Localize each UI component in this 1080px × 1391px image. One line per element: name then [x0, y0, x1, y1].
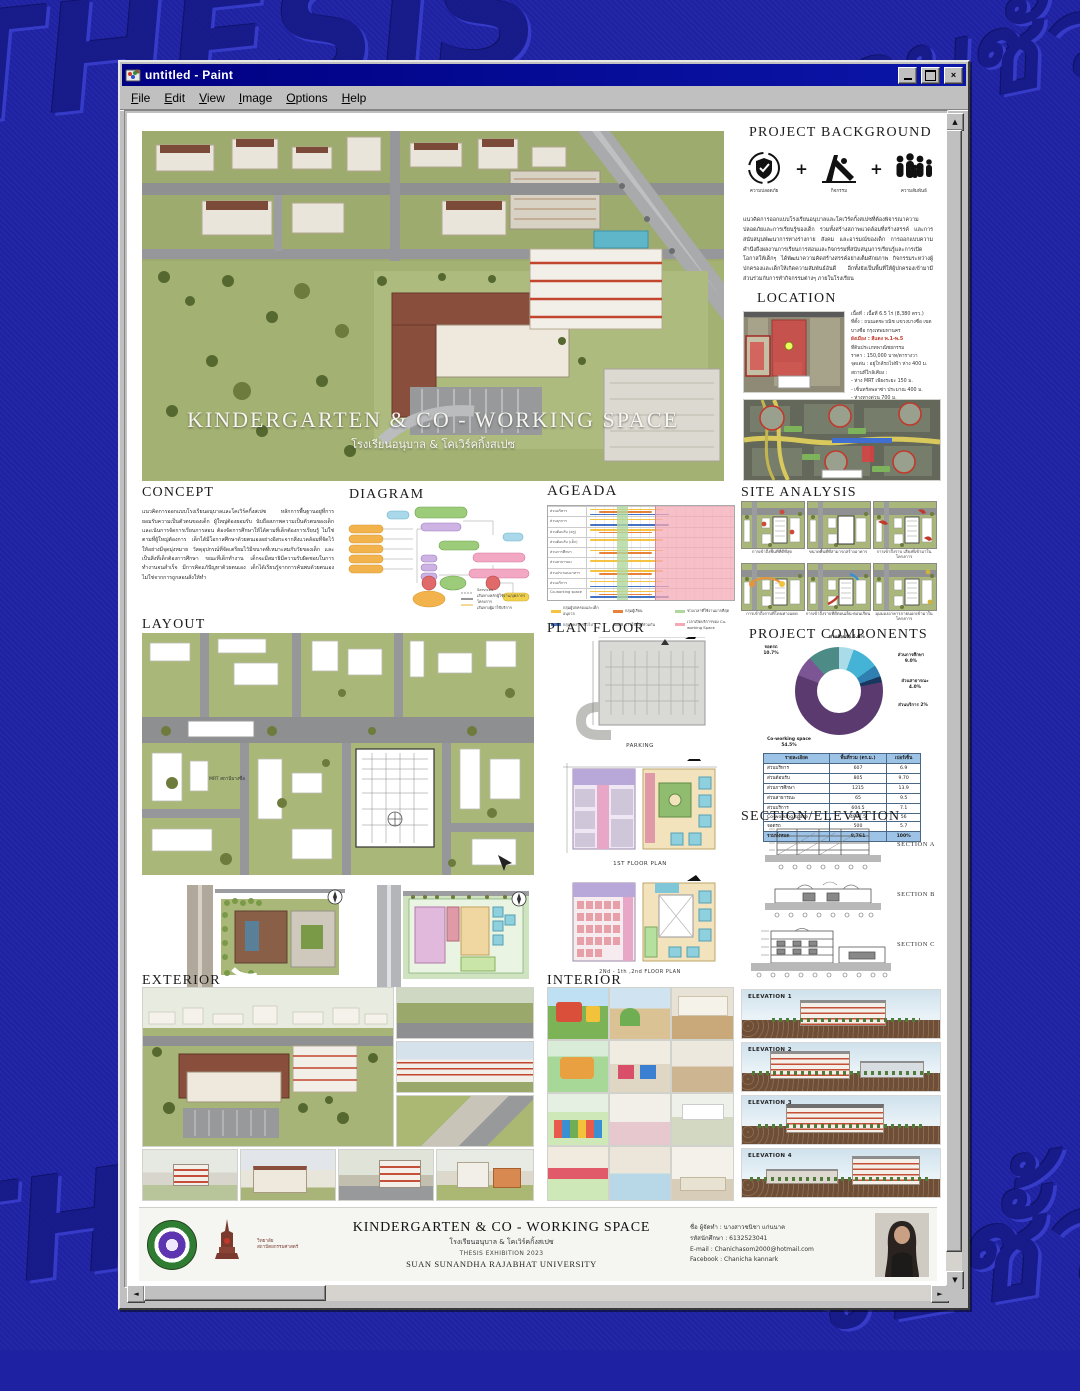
paint-app-icon [125, 67, 141, 83]
elevation-4-render: ELEVATION 4 [741, 1148, 941, 1198]
minimize-button[interactable] [898, 67, 917, 84]
project-background-icons: ความปลอดภัย + กิจกรรม + ความสัมพันธ์ [739, 151, 939, 195]
location-aerial-map [743, 399, 941, 481]
close-button[interactable]: × [944, 67, 963, 84]
author-student-id: รหัสนักศึกษา : 6132523041 [690, 1234, 865, 1245]
minimize-icon [904, 78, 912, 80]
university-emblem-logo [147, 1220, 197, 1270]
footer-author-info: ชื่อ ผู้จัดทำ : นางสาวชนิชา แก่นนาค รหัส… [690, 1223, 865, 1266]
section-c-label: SECTION C [897, 941, 935, 948]
menu-bar: File Edit View Image Options Help [120, 88, 968, 110]
footer-title-block: KINDERGARTEN & CO - WORKING SPACE โรงเรี… [323, 1220, 680, 1269]
section-a-label: SECTION A [897, 841, 935, 848]
interior-render-7 [547, 1093, 609, 1146]
site-analysis-heading: SITE ANALYSIS [741, 485, 857, 501]
location-nearby-item: - เซ็นทรัลพลาซ่า ประมาณ 400 ม. [851, 387, 939, 395]
interior-render-12 [671, 1146, 734, 1201]
poster-canvas: KINDERGARTEN & CO - WORKING SPACE โรงเรี… [127, 113, 949, 1289]
architecture-college-logo [207, 1217, 247, 1273]
maximize-icon [925, 70, 936, 81]
exterior-render-6 [240, 1149, 336, 1201]
ground-floor-site-plan [377, 885, 534, 987]
interior-render-9 [671, 1093, 734, 1146]
scrollbar-corner [946, 1285, 962, 1301]
concept-heading: CONCEPT [142, 485, 214, 501]
site-map-illustration [744, 312, 844, 392]
elevation-2-render: ELEVATION 2 [741, 1042, 941, 1092]
icon-caption: ความปลอดภัย [750, 188, 778, 195]
paint-window: untitled - Paint × File Edit View Image … [118, 60, 970, 1310]
footer-title: KINDERGARTEN & CO - WORKING SPACE [323, 1220, 680, 1236]
footer-subtitle: โรงเรียนอนุบาล & โคเวิร์คกิ้งสเปซ [323, 1237, 680, 1248]
agenda-legend-item: กลุ่มผู้ปกครองและเด็กอนุบาล [551, 605, 609, 617]
site-analysis-caption: การเข้าถึงราบที่ดีตอนเย็น-ตอนเรียน [805, 611, 871, 616]
window-title: untitled - Paint [145, 68, 894, 82]
project-background-heading: PROJECT BACKGROUND [749, 125, 932, 141]
elevation-label: ELEVATION 2 [748, 1047, 792, 1053]
components-donut-chart [795, 647, 883, 735]
exterior-render-3 [396, 1041, 534, 1093]
mrt-station-label: MRT สถานีบางซื่อ [194, 776, 260, 783]
menu-view[interactable]: View [192, 90, 232, 106]
concept-paragraph: แนวคิดการออกแบบโรงเรียนอนุบาลและโคเวิร์ค… [142, 508, 334, 583]
vertical-scrollbar[interactable]: ▲ ▼ [946, 113, 962, 1289]
components-table-row: ส่วนการศึกษา121513.9 [764, 784, 921, 794]
donut-label: Co-working space54.5% [759, 737, 819, 748]
project-background-paragraph: แนวคิดการออกแบบโรงเรียนอนุบาลและโคเวิร์ค… [743, 216, 933, 284]
poster-footer: วิทยาลัยสถาปัตยกรรมศาสตร์ KINDERGARTEN &… [139, 1207, 937, 1281]
site-analysis-caption: การเข้าถึงราบที่โดนทางแดด [739, 611, 805, 616]
site-analysis-thumb-1 [741, 501, 805, 549]
aerial-map-illustration [744, 400, 940, 480]
site-analysis-thumb-5 [807, 563, 871, 611]
icon-caption: กิจกรรม [831, 188, 847, 195]
vertical-scroll-thumb[interactable] [946, 130, 962, 1252]
site-analysis-thumb-3 [873, 501, 937, 549]
hero-render: KINDERGARTEN & CO - WORKING SPACE โรงเรี… [142, 131, 724, 481]
parking-plan [565, 637, 715, 745]
interior-render-11 [609, 1146, 671, 1201]
horizontal-scrollbar[interactable]: ◄ ► [127, 1285, 949, 1301]
donut-label: ส่วนบริการ 2% [891, 703, 935, 709]
section-elevation-heading: SECTION/ELEVATION [741, 809, 900, 825]
parking-caption: PARKING [565, 743, 715, 749]
scroll-up-button[interactable]: ▲ [946, 113, 964, 131]
elevation-3-render: ELEVATION 3 [741, 1095, 941, 1145]
menu-image[interactable]: Image [232, 90, 279, 106]
interior-render-6 [671, 1040, 734, 1093]
footer-exhibition: THESIS EXHIBITION 2023 [323, 1250, 680, 1257]
hero-title-block: KINDERGARTEN & CO - WORKING SPACE โรงเรี… [142, 407, 724, 453]
donut-label: ส่วนการศึกษา9.0% [889, 653, 933, 664]
donut-label: ส่วนต้อนรับ 5.0% [827, 635, 867, 641]
elevation-label: ELEVATION 3 [748, 1100, 792, 1106]
components-table-row: ส่วนต้อนรับ8059.70 [764, 774, 921, 784]
plus-sign: + [795, 160, 808, 178]
menu-options[interactable]: Options [279, 90, 334, 106]
hero-subtitle: โรงเรียนอนุบาล & โคเวิร์คกิ้งสเปซ [142, 435, 724, 453]
interior-render-2 [609, 987, 671, 1040]
college-name: วิทยาลัยสถาปัตยกรรมศาสตร์ [257, 1239, 313, 1251]
roof-plan-render [187, 885, 352, 987]
hero-title: KINDERGARTEN & CO - WORKING SPACE [142, 407, 724, 433]
exterior-render-8 [436, 1149, 534, 1201]
interior-render-3 [671, 987, 734, 1040]
interior-render-1 [547, 987, 609, 1040]
location-nearby-label: สถานที่ใกล้เคียง : [851, 370, 939, 378]
agenda-legend-item: เวลาเปิดบริการของ Co-working Space [675, 619, 733, 630]
location-zoning-detail: ที่ดินประเภทพาณิชยกรรม [851, 345, 939, 353]
site-analysis-thumb-2 [807, 501, 871, 549]
site-analysis-thumb-6 [873, 563, 937, 611]
agenda-legend-item: ช่วงเวลาที่ใช้งานมากที่สุด [675, 605, 733, 617]
exterior-render-main [142, 987, 394, 1147]
menu-edit[interactable]: Edit [157, 90, 192, 106]
donut-label: จอดรถ10.7% [749, 645, 793, 656]
section-a-drawing [757, 825, 887, 875]
first-floor-caption: 1ST FLOOR PLAN [559, 861, 721, 867]
site-analysis-caption: มุมมองอาคารภายนอกเข้ามาในโครงการ [871, 611, 937, 622]
canvas-frame: KINDERGARTEN & CO - WORKING SPACE โรงเรี… [124, 110, 948, 1288]
maximize-button[interactable] [921, 67, 940, 84]
location-site-map [743, 311, 845, 393]
exterior-render-7 [338, 1149, 434, 1201]
icon-caption: ความสัมพันธ์ [901, 188, 927, 195]
interior-render-8 [609, 1093, 671, 1146]
location-site: ที่ตั้ง : ถนนเตชะวณิช แขวงบางซื่อ เขตบาง… [851, 319, 939, 336]
components-table-row: ส่วนสาธารณะ659.5 [764, 794, 921, 804]
section-b-label: SECTION B [897, 891, 935, 898]
section-c-drawing [745, 925, 895, 983]
location-highlight: จุดเด่น : อยู่ใกล้รถไฟฟ้า ห่าง 400 ม. [851, 361, 939, 369]
footer-university: SUAN SUNANDHA RAJABHAT UNIVERSITY [323, 1259, 680, 1269]
layout-heading: LAYOUT [142, 617, 205, 633]
agenda-pink-band [655, 506, 734, 600]
location-details: เนื้อที่ : เนื้อที่ 6.5 ไร่ (8,380 ตรว.)… [851, 311, 939, 412]
agenda-legend-item: กลุ่มผู้เรียน [613, 605, 671, 617]
family-group-icon [892, 151, 936, 185]
titlebar[interactable]: untitled - Paint × [122, 64, 966, 86]
elevation-label: ELEVATION 1 [748, 994, 792, 1000]
agenda-heading: AGEADA [547, 483, 618, 500]
plan-floor-heading: PLAN FLOOR [547, 621, 645, 637]
layout-site-plan: MRT สถานีบางซื่อ [142, 633, 534, 875]
exterior-render-4 [396, 1095, 534, 1147]
horizontal-scroll-thumb[interactable] [144, 1285, 326, 1301]
site-analysis-caption: การเข้าถึงราบ เสียงที่เข้ามาในโครงการ [871, 549, 937, 560]
exterior-render-5 [142, 1149, 238, 1201]
site-analysis-caption: การเข้าถึงพื้นที่ที่ดีที่สุด [739, 549, 805, 554]
agenda-green-band [617, 506, 628, 600]
components-table-row: ส่วนบริหาร6076.9 [764, 764, 921, 774]
scroll-left-button[interactable]: ◄ [127, 1285, 145, 1303]
author-facebook: Facebook : Chanicha kannark [690, 1255, 865, 1266]
interior-render-5 [609, 1040, 671, 1093]
author-portrait-photo [875, 1213, 929, 1277]
location-heading: LOCATION [757, 291, 837, 307]
interior-render-10 [547, 1146, 609, 1201]
menu-file[interactable]: File [124, 90, 157, 106]
location-area: เนื้อที่ : เนื้อที่ 6.5 ไร่ (8,380 ตรว.) [851, 311, 939, 319]
author-name: ชื่อ ผู้จัดทำ : นางสาวชนิชา แก่นนาค [690, 1223, 865, 1234]
agenda-chart: ส่วนบริหารส่วนธุรการส่วนต้อนรับ (ครู)ส่ว… [547, 505, 735, 601]
diagram-legend: Servicesเส้นทางหลักผู้ใช้งาน/บุคลากรโครง… [477, 587, 537, 611]
exterior-render-2 [396, 987, 534, 1039]
location-price: ราคา : 150,000 บาท/ตารางวา [851, 353, 939, 361]
diagram-flowchart: Servicesเส้นทางหลักผู้ใช้งาน/บุคลากรโครง… [343, 505, 539, 613]
diagram-heading: DIAGRAM [349, 487, 424, 503]
playground-slide-icon [820, 151, 858, 185]
safety-shield-icon [747, 151, 781, 185]
menu-help[interactable]: Help [335, 90, 374, 106]
location-nearby-item: - ห่าง MRT เพียงระยะ 150 ม. [851, 378, 939, 386]
interior-render-4 [547, 1040, 609, 1093]
second-floor-plan [559, 875, 721, 971]
section-b-drawing [757, 879, 887, 925]
site-analysis-thumb-4 [741, 563, 805, 611]
plus-sign: + [870, 160, 883, 178]
elevation-label: ELEVATION 4 [748, 1153, 792, 1159]
location-zoning: ผังเมือง : สีแดง พ.1-พ.5 [851, 336, 939, 344]
first-floor-plan [559, 759, 721, 861]
donut-label: ส่วนสาธารณะ4.0% [893, 679, 937, 690]
elevation-1-render: ELEVATION 1 [741, 989, 941, 1039]
site-analysis-caption: ขนาดพื้นที่ที่สามารถสร้างอาคาร [805, 549, 871, 554]
author-email: E-mail : Chanichasom2000@hotmail.com [690, 1245, 865, 1256]
